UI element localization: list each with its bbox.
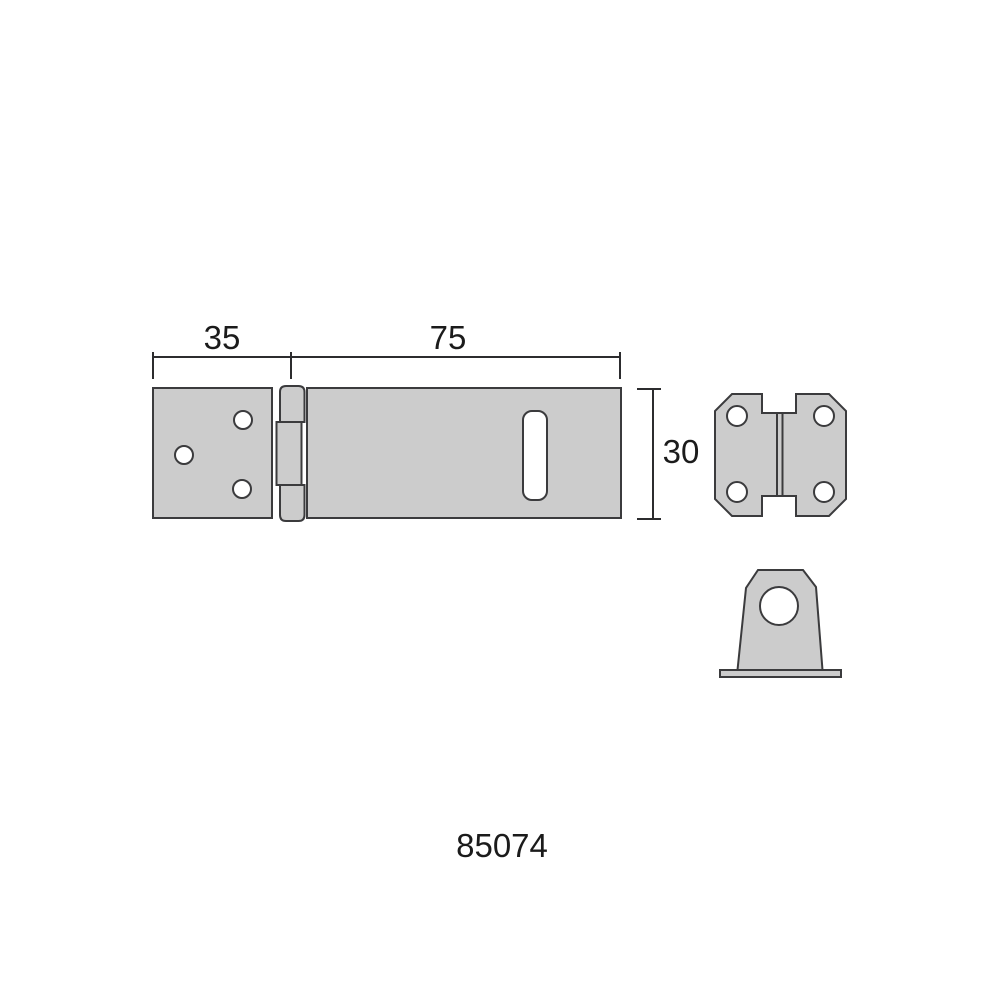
hasp-front-view — [153, 386, 621, 521]
hinge-knuckle-bottom — [280, 485, 305, 521]
screw-hole — [727, 482, 747, 502]
screw-hole — [814, 482, 834, 502]
hinge-leaf-plate — [153, 388, 272, 518]
technical-drawing: 35 75 30 — [0, 0, 1000, 1000]
staple-slot — [523, 411, 547, 500]
drawing-canvas: 35 75 30 — [0, 0, 1000, 1000]
dim-label-leaf-width: 35 — [204, 319, 241, 356]
screw-hole — [814, 406, 834, 426]
staple-eye-hole — [760, 587, 798, 625]
hasp-plate — [307, 388, 621, 518]
screw-hole — [175, 446, 193, 464]
dim-label-plate-height: 30 — [663, 433, 700, 470]
dim-label-hasp-length: 75 — [430, 319, 467, 356]
hasp-back-view — [715, 394, 846, 516]
screw-hole — [233, 480, 251, 498]
part-number: 85074 — [456, 827, 548, 864]
screw-hole — [727, 406, 747, 426]
hinge-knuckle-top — [280, 386, 305, 422]
staple-base-plate — [720, 670, 841, 677]
staple-front-view — [720, 570, 841, 677]
hinge-knuckle-middle — [277, 422, 302, 485]
height-dimension: 30 — [637, 389, 699, 519]
screw-hole — [234, 411, 252, 429]
top-dimension: 35 75 — [153, 319, 620, 379]
